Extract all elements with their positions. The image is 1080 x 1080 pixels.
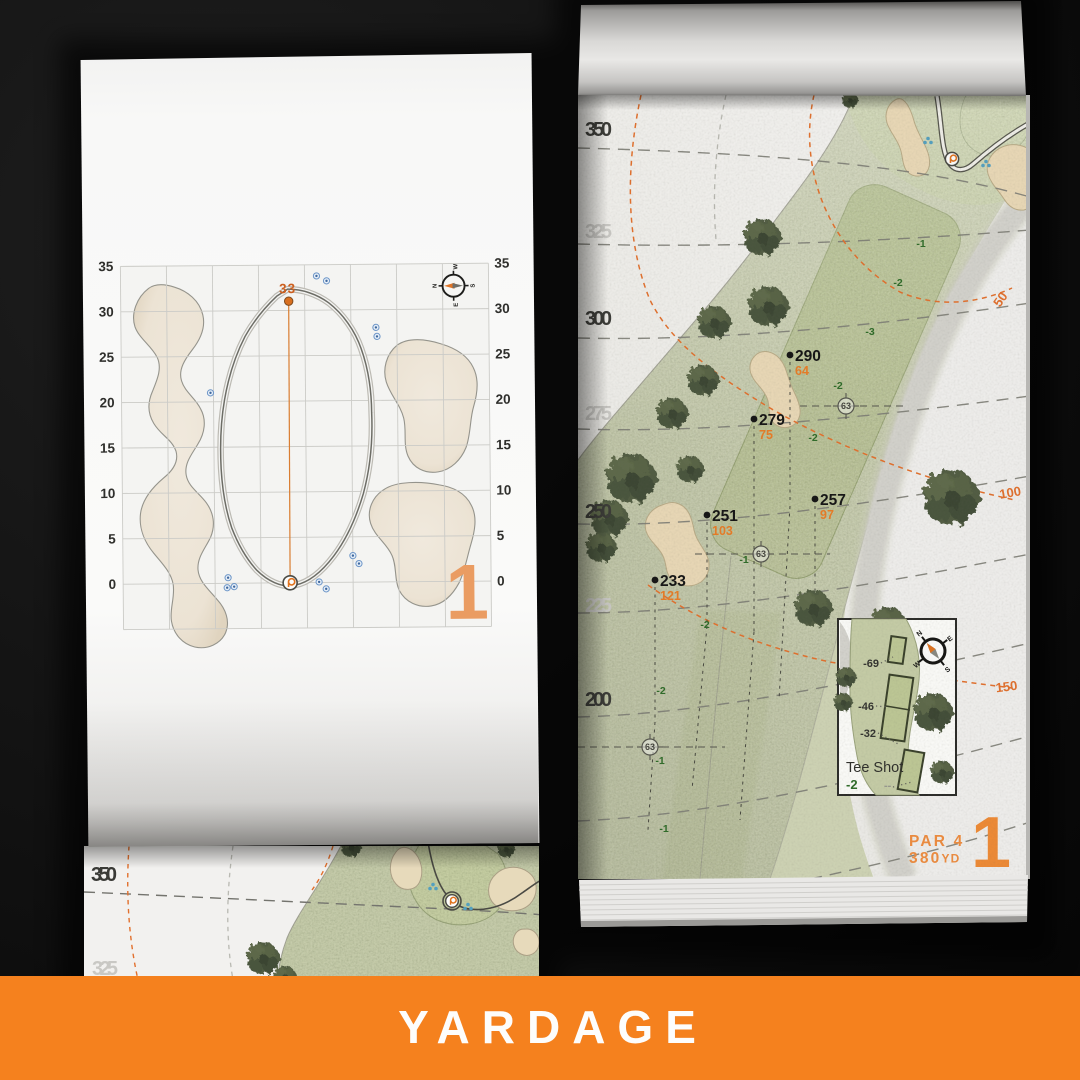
svg-text:YARDAGE: YARDAGE (398, 1001, 708, 1053)
svg-text:N: N (433, 284, 439, 288)
svg-text:5: 5 (497, 528, 505, 543)
svg-text:25: 25 (99, 350, 115, 365)
svg-text:1: 1 (445, 547, 489, 635)
svg-text:S: S (471, 284, 477, 288)
svg-text:10: 10 (496, 483, 511, 498)
svg-text:30: 30 (99, 304, 114, 319)
svg-text:W: W (453, 264, 459, 270)
svg-text:5: 5 (108, 531, 116, 546)
svg-text:35: 35 (98, 259, 114, 274)
svg-text:15: 15 (496, 437, 512, 452)
svg-text:25: 25 (495, 346, 511, 361)
svg-text:20: 20 (99, 395, 114, 410)
svg-text:20: 20 (495, 392, 510, 407)
svg-text:0: 0 (497, 573, 505, 588)
svg-text:0: 0 (109, 577, 117, 592)
svg-text:15: 15 (100, 441, 116, 456)
svg-text:30: 30 (495, 301, 510, 316)
svg-text:10: 10 (100, 486, 115, 501)
svg-text:33: 33 (279, 281, 296, 296)
svg-text:35: 35 (494, 256, 510, 271)
svg-text:E: E (454, 303, 460, 307)
